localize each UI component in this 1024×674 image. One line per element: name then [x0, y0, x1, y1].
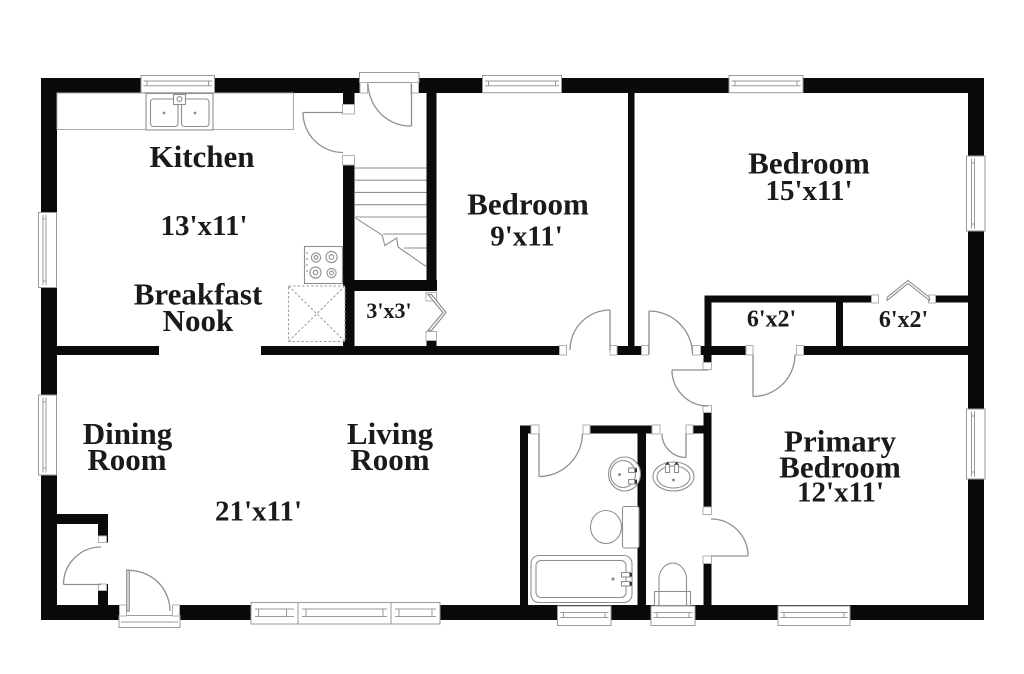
svg-text:Room: Room — [87, 442, 166, 477]
svg-text:21'x11': 21'x11' — [215, 496, 302, 528]
svg-text:13'x11': 13'x11' — [160, 210, 247, 242]
svg-text:Bedroom: Bedroom — [467, 187, 589, 222]
svg-text:15'x11': 15'x11' — [765, 175, 852, 207]
svg-text:Nook: Nook — [163, 303, 234, 338]
svg-text:12'x11': 12'x11' — [797, 477, 884, 509]
svg-text:3'x3': 3'x3' — [366, 298, 411, 323]
svg-text:6'x2': 6'x2' — [879, 307, 928, 333]
svg-text:Kitchen: Kitchen — [149, 139, 254, 174]
svg-text:6'x2': 6'x2' — [747, 307, 796, 333]
svg-text:Room: Room — [350, 442, 429, 477]
svg-text:9'x11': 9'x11' — [490, 221, 563, 253]
